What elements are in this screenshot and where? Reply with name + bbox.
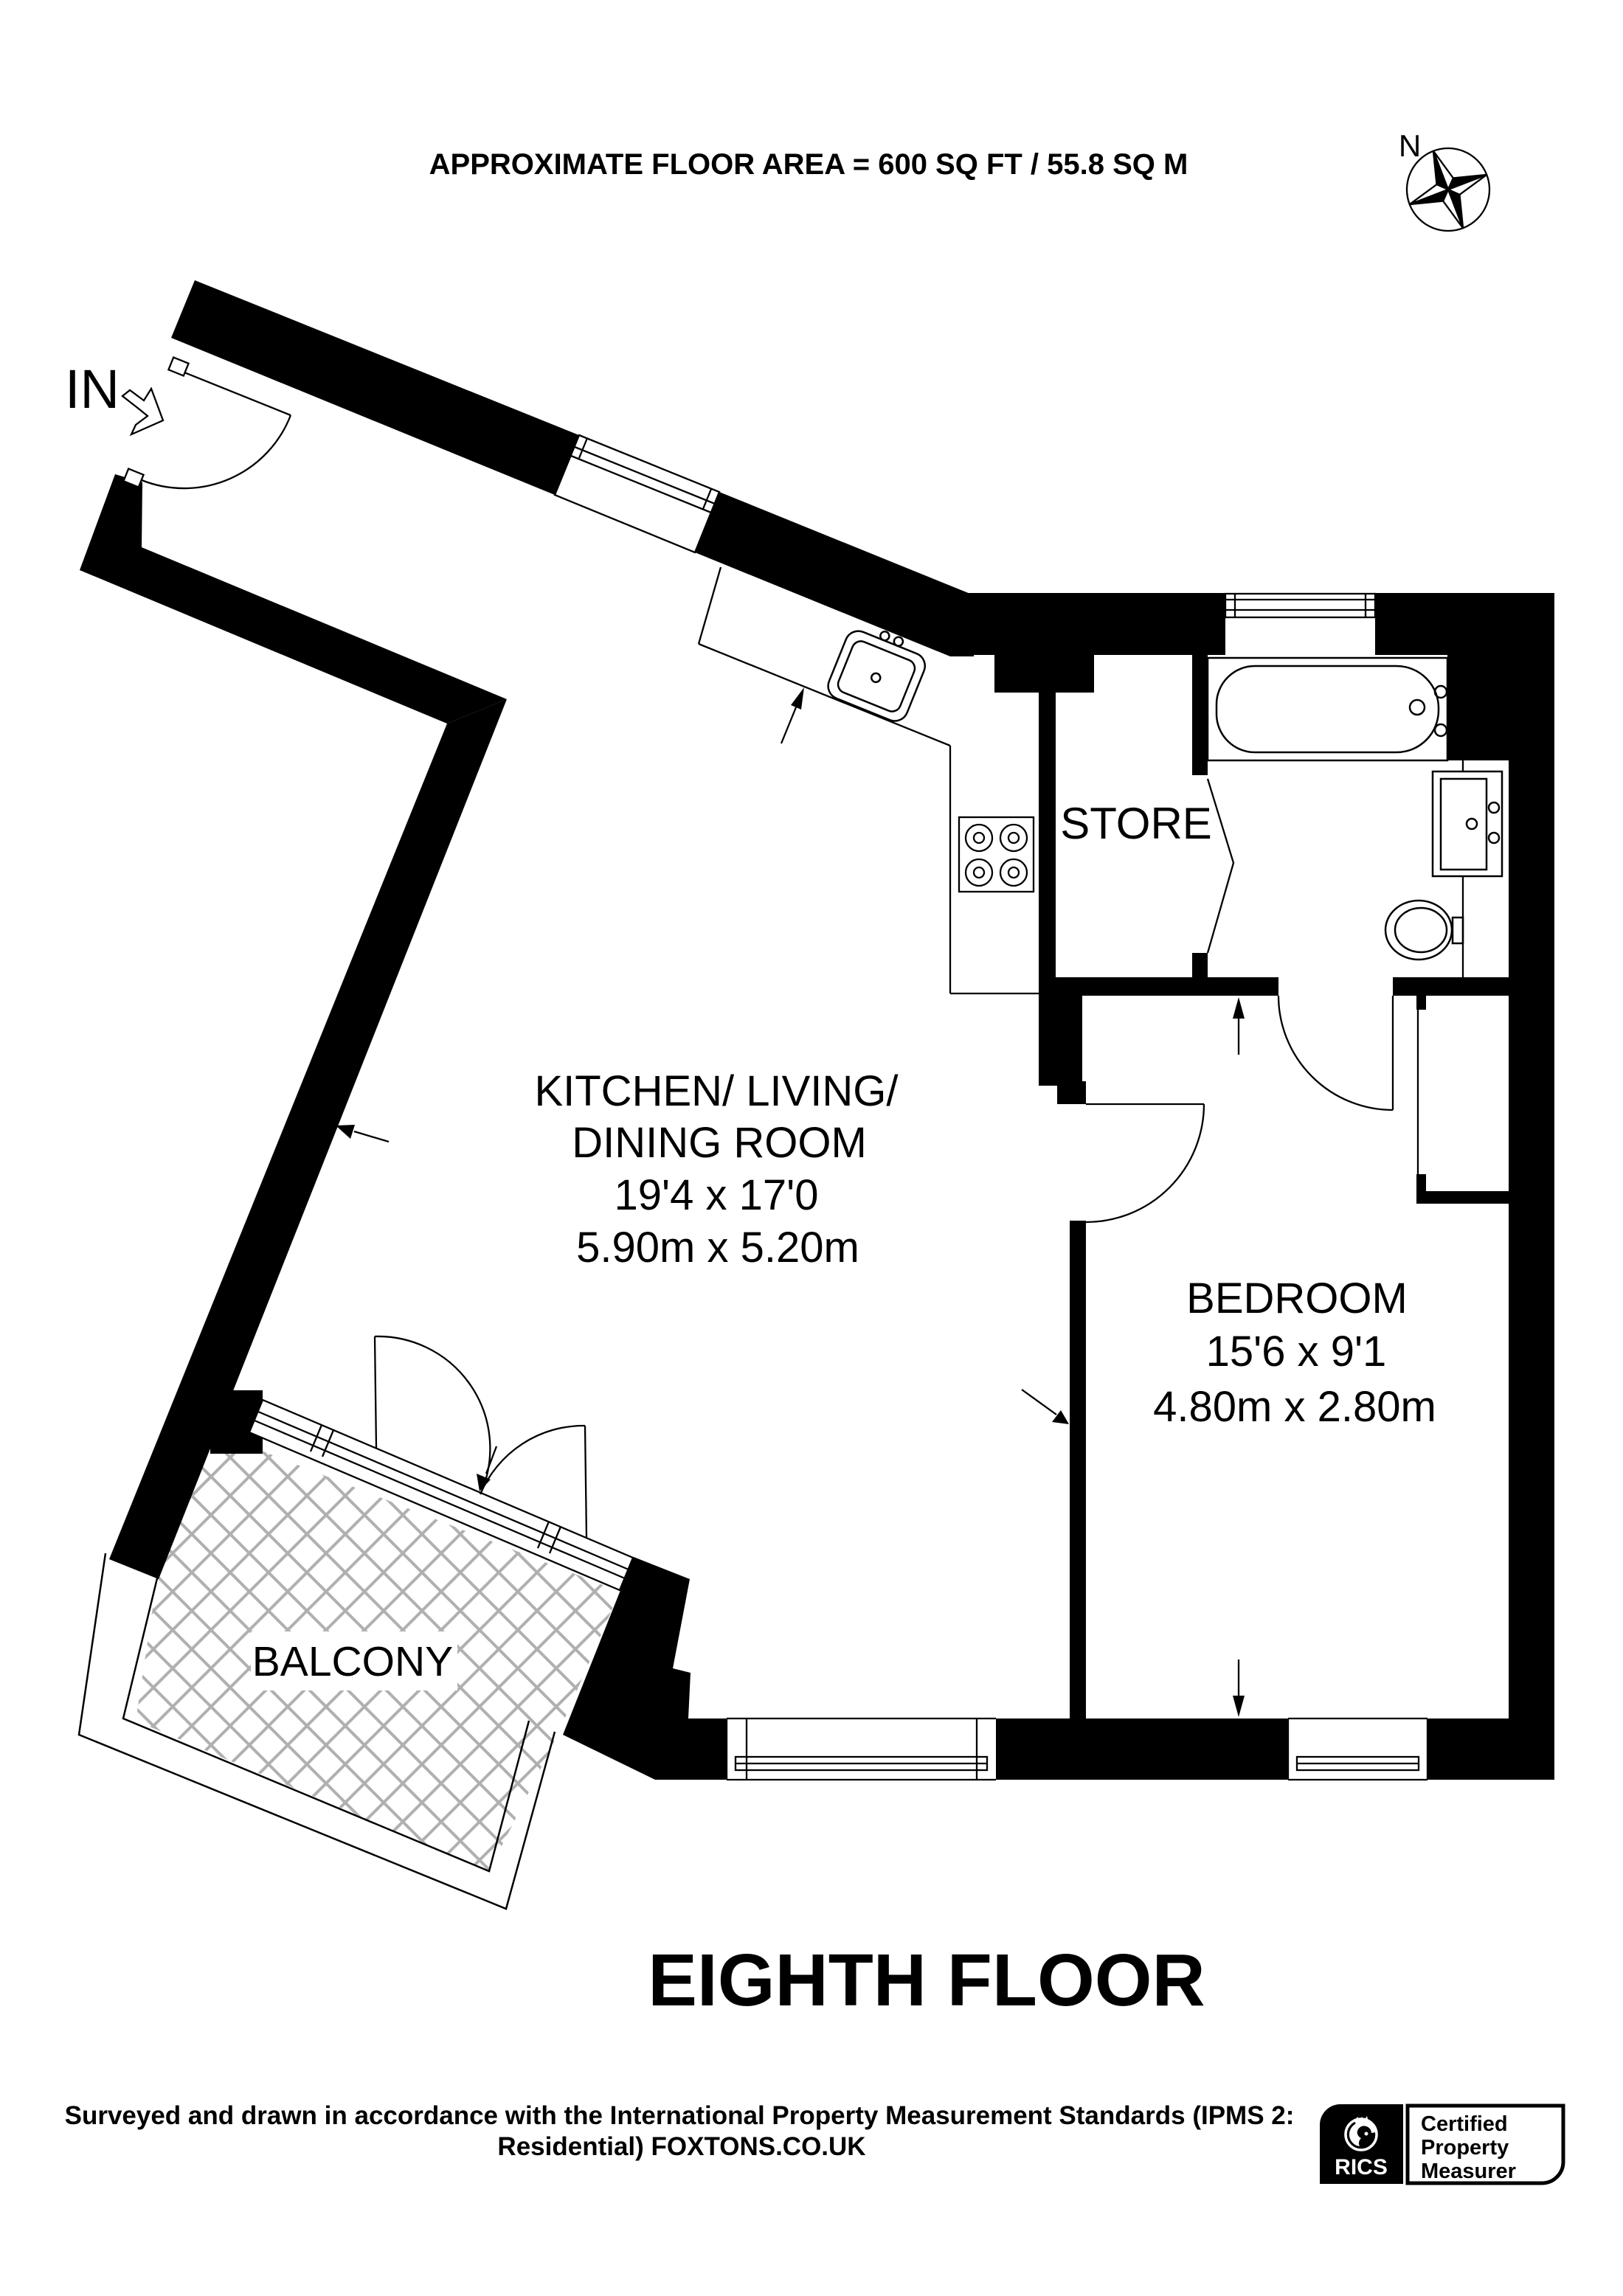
svg-text:APPROXIMATE FLOOR AREA = 600 S: APPROXIMATE FLOOR AREA = 600 SQ FT / 55.… bbox=[429, 148, 1188, 181]
svg-text:STORE: STORE bbox=[1060, 799, 1212, 848]
svg-text:EIGHTH FLOOR: EIGHTH FLOOR bbox=[648, 1939, 1205, 2022]
svg-text:Property: Property bbox=[1421, 2136, 1509, 2160]
svg-text:N: N bbox=[1399, 128, 1421, 163]
svg-text:BEDROOM: BEDROOM bbox=[1186, 1274, 1408, 1322]
svg-text:RICS: RICS bbox=[1335, 2155, 1388, 2179]
svg-text:15'6 x 9'1: 15'6 x 9'1 bbox=[1206, 1328, 1387, 1376]
svg-text:19'4 x 17'0: 19'4 x 17'0 bbox=[615, 1171, 819, 1219]
svg-text:BALCONY: BALCONY bbox=[252, 1638, 453, 1685]
svg-text:Certified: Certified bbox=[1421, 2112, 1508, 2136]
svg-text:Residential) FOXTONS.CO.UK: Residential) FOXTONS.CO.UK bbox=[497, 2132, 865, 2161]
svg-text:Surveyed and drawn in accordan: Surveyed and drawn in accordance with th… bbox=[65, 2101, 1295, 2130]
svg-text:Measurer: Measurer bbox=[1421, 2160, 1516, 2183]
svg-text:DINING ROOM: DINING ROOM bbox=[572, 1119, 867, 1167]
svg-text:5.90m x 5.20m: 5.90m x 5.20m bbox=[576, 1224, 859, 1272]
svg-text:KITCHEN/ LIVING/: KITCHEN/ LIVING/ bbox=[534, 1067, 899, 1115]
svg-text:4.80m x 2.80m: 4.80m x 2.80m bbox=[1153, 1383, 1436, 1431]
svg-text:IN: IN bbox=[65, 358, 120, 420]
